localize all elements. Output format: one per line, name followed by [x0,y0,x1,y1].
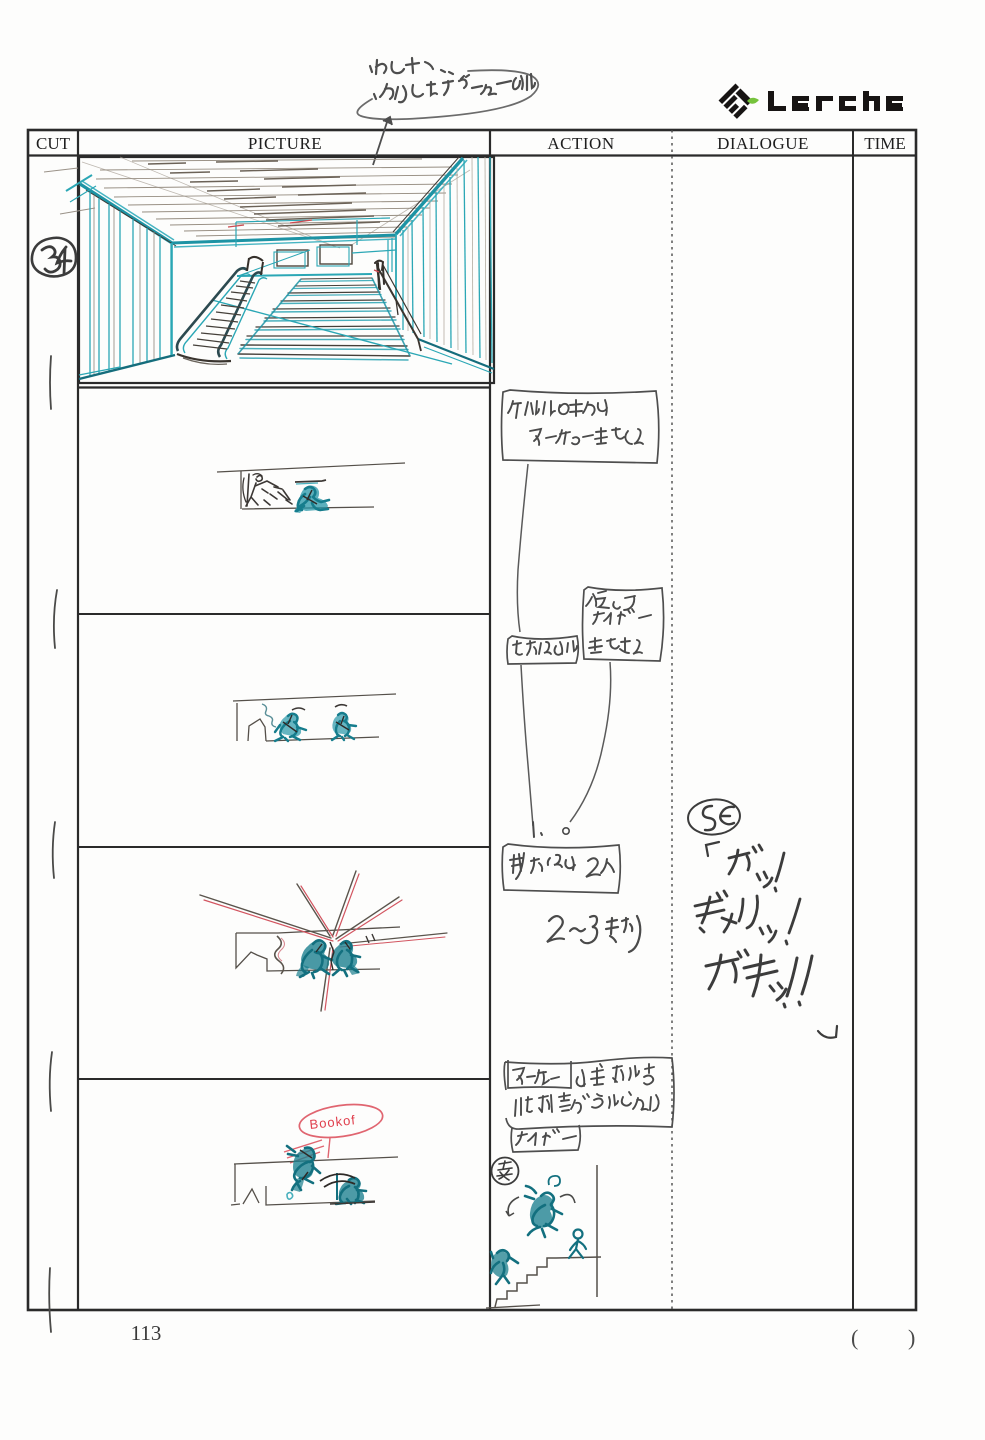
svg-text:DIALOGUE: DIALOGUE [717,134,809,153]
svg-text:): ) [908,1325,915,1350]
svg-text:(: ( [851,1325,858,1350]
svg-text:Bookof: Bookof [309,1112,357,1132]
svg-text:TIME: TIME [864,134,906,153]
svg-text:113: 113 [131,1321,162,1345]
svg-text:PICTURE: PICTURE [248,134,322,153]
svg-text:CUT: CUT [36,134,71,153]
svg-text:ACTION: ACTION [547,134,614,153]
